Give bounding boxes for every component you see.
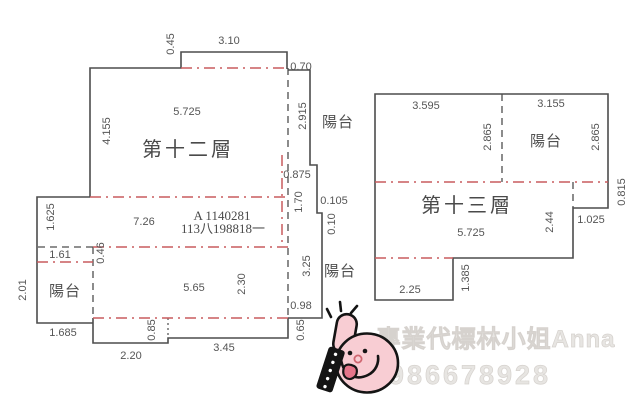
dim-balcony-height-right: 2.865 <box>590 123 602 151</box>
floor12-outline-upper <box>90 52 287 197</box>
dim-bottom-notch-right-depth: 0.65 <box>295 319 307 340</box>
dim-balcony-left-width: 1.685 <box>49 327 77 339</box>
dim-upper-room-width: 5.725 <box>173 106 201 118</box>
dim-bottom-notch-left-depth: 0.85 <box>146 319 158 340</box>
dim-bottom-notch-depth: 1.385 <box>460 264 472 292</box>
dim-right-step-b: 1.70 <box>293 191 305 212</box>
dim-top-notch-height: 0.45 <box>165 33 177 54</box>
dim-right-step-width: 1.025 <box>577 214 605 226</box>
dim-bottom-notch-left-width: 2.20 <box>120 350 141 362</box>
dim-balcony-top-width: 0.70 <box>290 61 311 73</box>
dim-top-right-width: 3.155 <box>537 98 565 110</box>
dim-right-step-c: 0.105 <box>320 195 348 207</box>
floor13-title: 第十三層 <box>421 194 513 217</box>
dim-bottom-notch-width: 2.25 <box>399 284 420 296</box>
floor12-balcony-left-label: 陽台 <box>49 283 81 300</box>
floor12-balcony-right-top-label: 陽台 <box>322 114 354 131</box>
floor12-balcony-right-bottom-label: 陽台 <box>324 263 356 280</box>
dim-left-step-height: 0.46 <box>95 242 107 263</box>
watermark-agent-text: 專業代標林小姐Anna <box>377 326 616 353</box>
dim-balcony-right2-height: 3.25 <box>301 255 313 276</box>
stamp-line2: 113八198818一 <box>181 221 265 236</box>
dim-room-width: 5.725 <box>457 227 485 239</box>
thumbs-up-mascot <box>316 302 398 393</box>
floor-plan-page: 3.10 0.45 0.70 5.725 第十二層 4.155 2.915 陽台… <box>0 0 640 407</box>
dim-right-step-height: 0.815 <box>616 178 628 206</box>
dim-balcony-right-height: 2.915 <box>297 102 309 130</box>
floor12-plan: 3.10 0.45 0.70 5.725 第十二層 4.155 2.915 陽台… <box>17 33 356 362</box>
floor12-title: 第十二層 <box>142 138 234 161</box>
dim-bottom-notch-right-width: 3.45 <box>213 342 234 354</box>
watermark: 專業代標林小姐Anna 0986678928 <box>371 326 616 390</box>
mascot-fist <box>336 334 398 393</box>
dim-room-height: 2.44 <box>544 211 556 232</box>
floor13-balcony-label: 陽台 <box>530 133 562 150</box>
dim-balcony-left-height: 2.01 <box>17 279 29 300</box>
dim-balcony-height-left: 2.865 <box>482 123 494 151</box>
dim-mid-band-height: 1.625 <box>45 203 57 231</box>
dim-left-step-width: 1.61 <box>49 249 70 261</box>
dim-top-notch-width: 3.10 <box>218 35 239 47</box>
dim-lower-room-width: 5.65 <box>183 282 204 294</box>
floor-plan-drawing: 3.10 0.45 0.70 5.725 第十二層 4.155 2.915 陽台… <box>0 0 640 407</box>
dim-mid-band-width: 7.26 <box>133 216 154 228</box>
floor12-outline-bottom-notches <box>93 318 288 343</box>
dim-upper-room-height: 4.155 <box>101 117 113 145</box>
dim-lower-room-height: 2.30 <box>236 273 248 294</box>
dim-top-left-width: 3.595 <box>412 100 440 112</box>
dim-right-step-d: 0.10 <box>326 213 338 234</box>
dim-right-step-a: 0.875 <box>283 169 311 181</box>
floor13-plan: 3.595 3.155 2.865 陽台 2.865 0.815 1.025 第… <box>375 94 628 300</box>
dim-balcony-right2-width: 0.98 <box>290 300 311 312</box>
